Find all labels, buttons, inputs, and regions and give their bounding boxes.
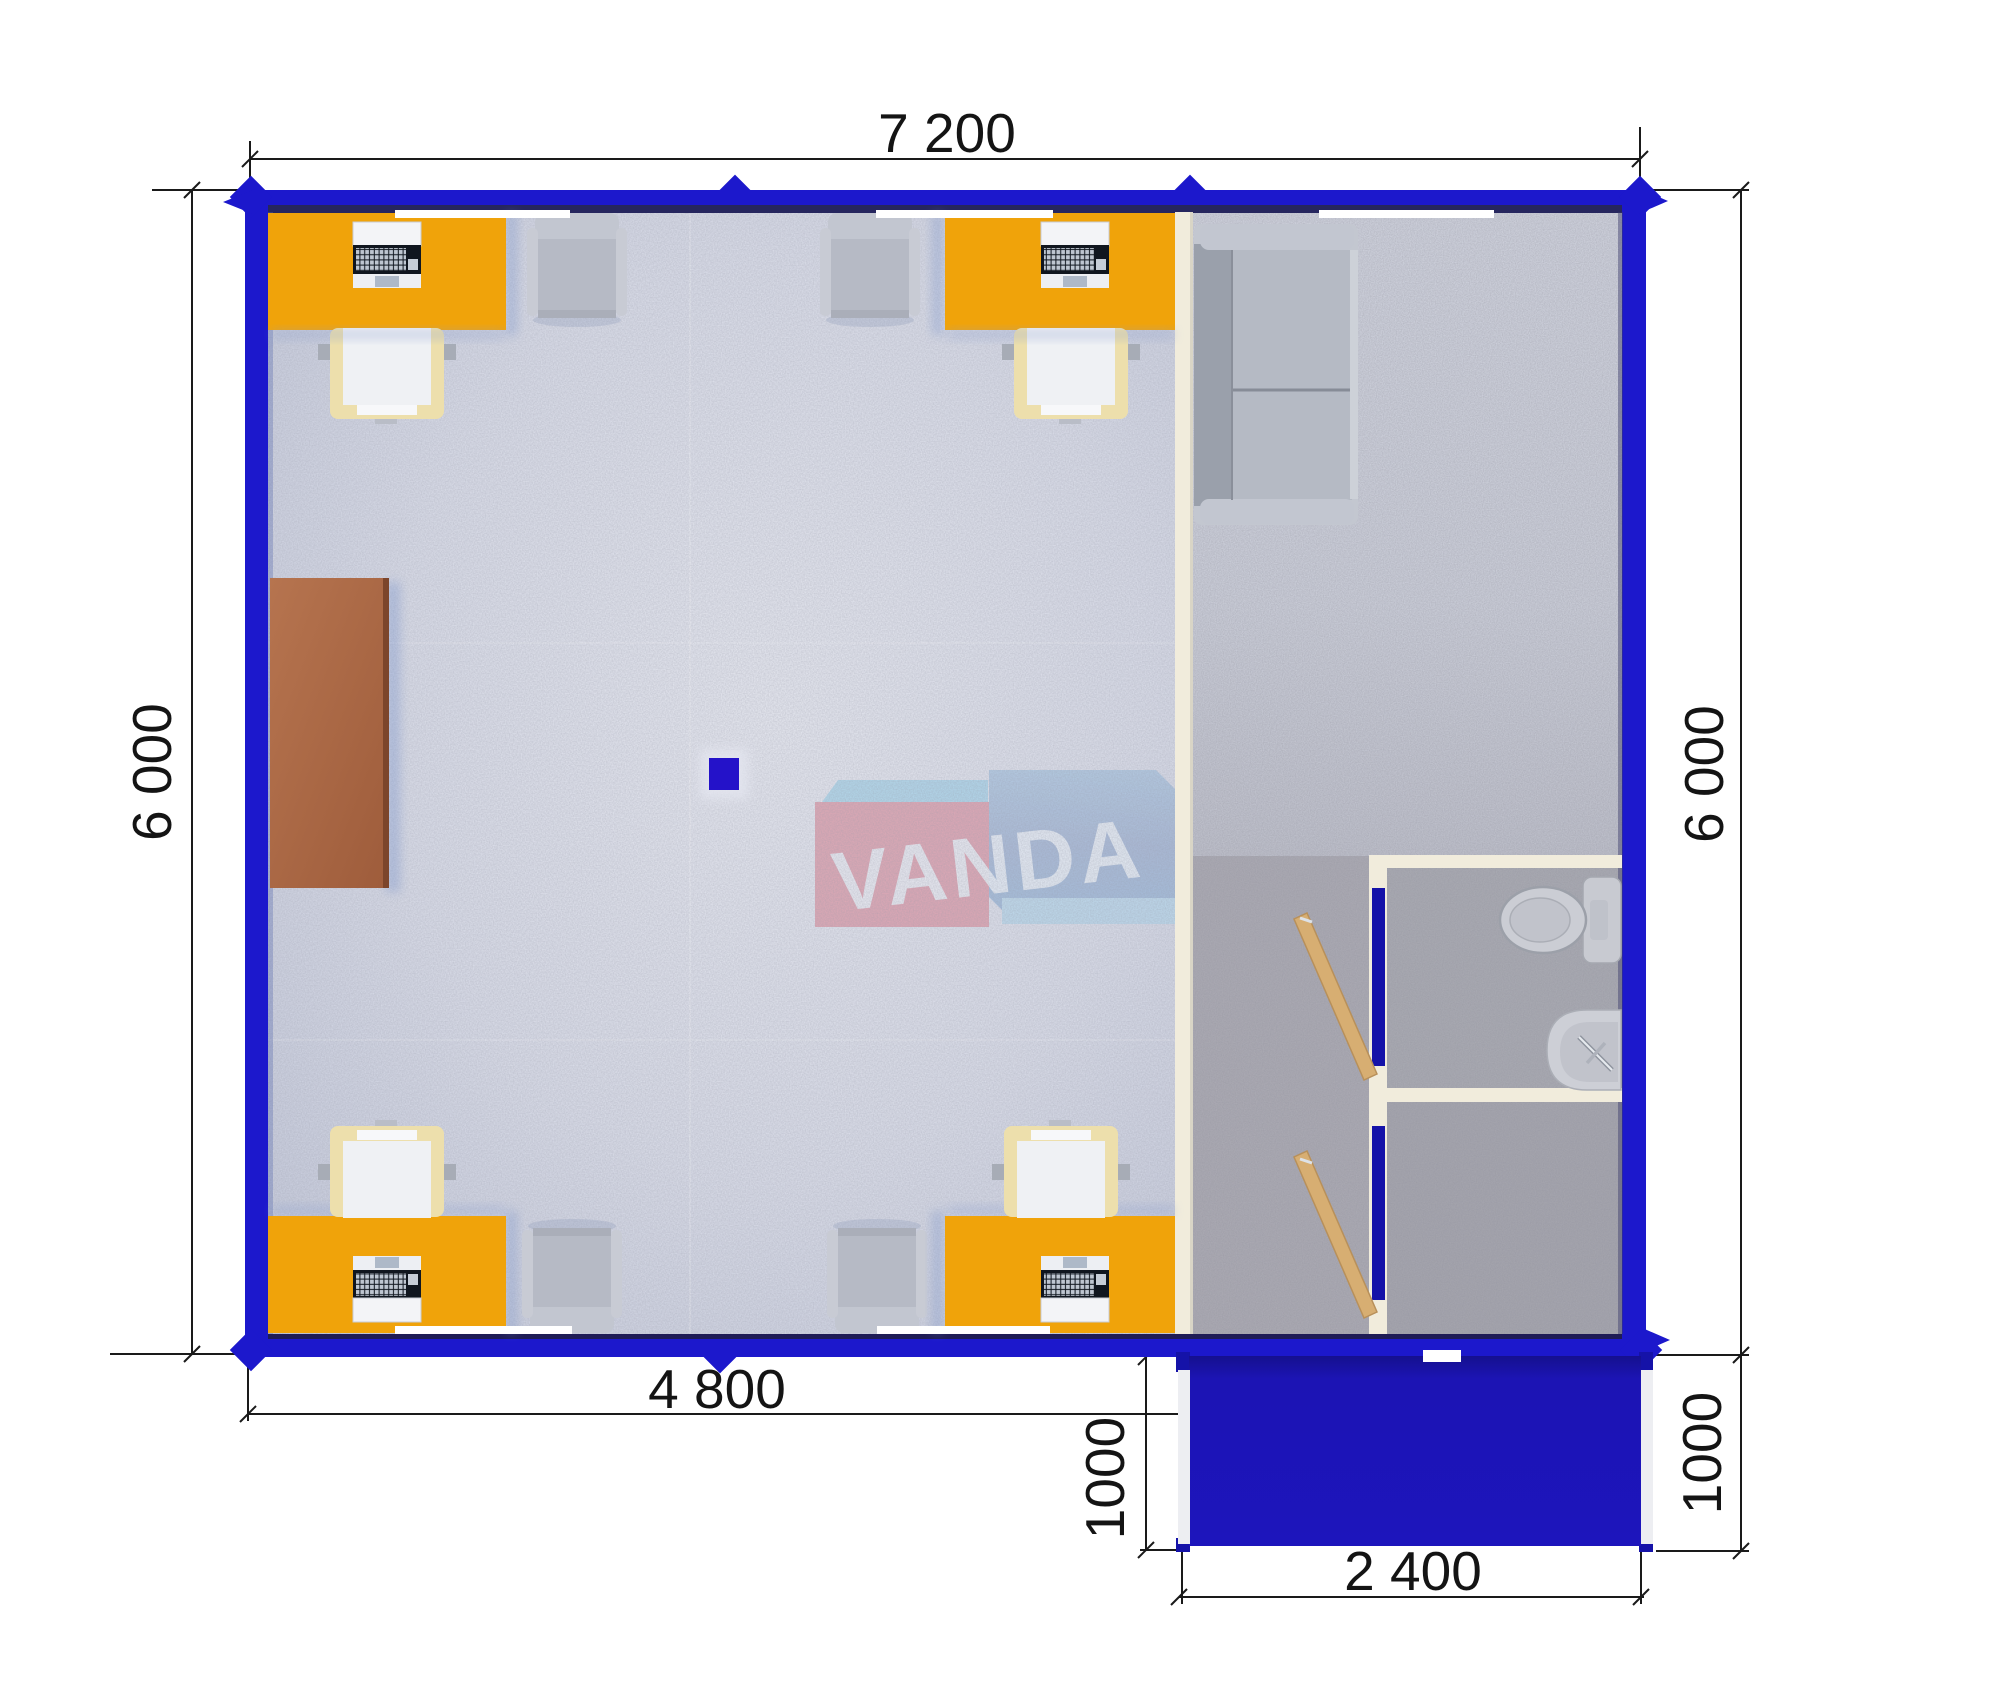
svg-text:1000: 1000 <box>1074 1417 1136 1539</box>
svg-text:6 000: 6 000 <box>1673 705 1735 843</box>
svg-text:7 200: 7 200 <box>878 102 1016 164</box>
svg-text:1000: 1000 <box>1671 1392 1733 1514</box>
svg-text:2 400: 2 400 <box>1344 1540 1482 1602</box>
svg-text:6 000: 6 000 <box>121 703 183 841</box>
